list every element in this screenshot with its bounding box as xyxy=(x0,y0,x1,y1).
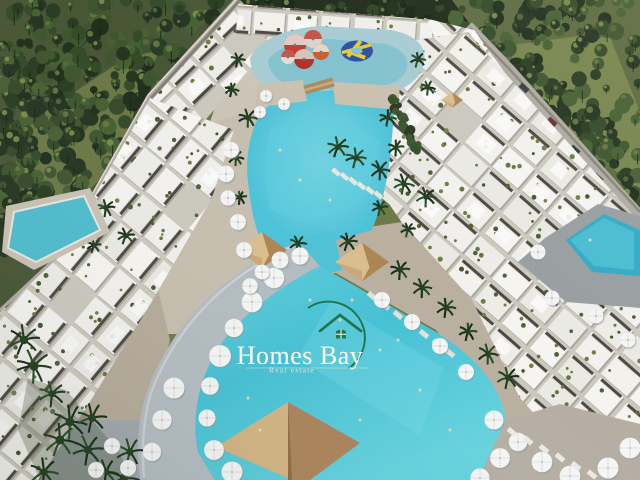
svg-text:Real estate: Real estate xyxy=(269,366,315,375)
